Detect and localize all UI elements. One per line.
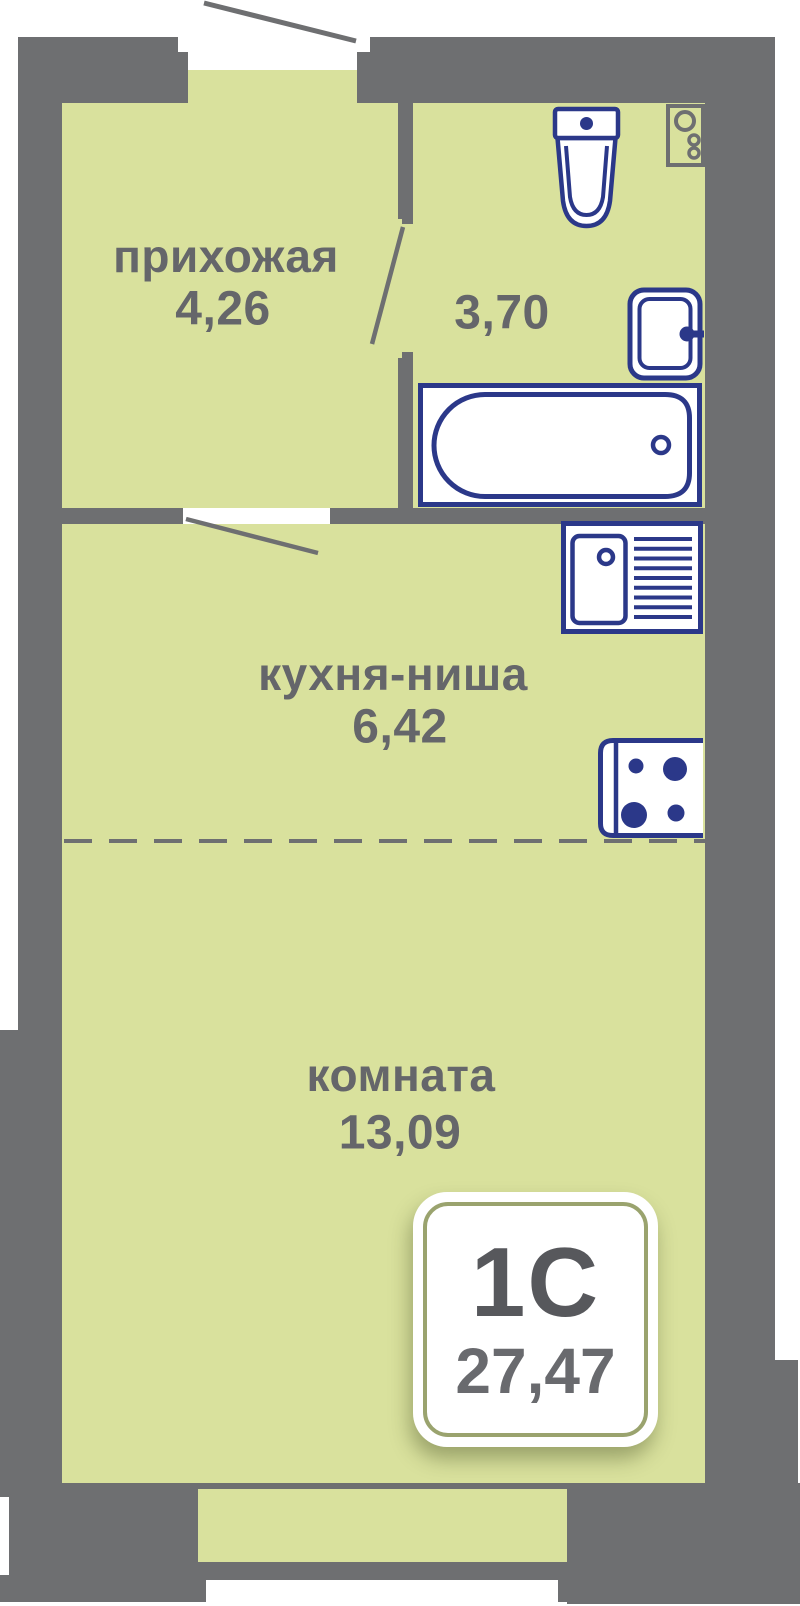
- entrance-door-swing: [204, 3, 356, 41]
- room-label: комната: [307, 1048, 496, 1102]
- apartment-type: 1С: [471, 1236, 600, 1329]
- kitchen-sink-icon: [564, 524, 701, 632]
- hallway-label: прихожая: [113, 229, 339, 283]
- apartment-badge: 1С 27,47: [413, 1192, 658, 1447]
- room-area: 13,09: [339, 1106, 462, 1161]
- bathroom-area: 3,70: [454, 286, 549, 341]
- kitchen-label: кухня-ниша: [258, 647, 528, 701]
- floor-plan: прихожая 4,26 3,70 кухня-ниша 6,42 комна…: [0, 0, 800, 1606]
- bathroom-door-swing: [372, 227, 403, 344]
- kitchen-area: 6,42: [352, 700, 447, 755]
- stove-icon: [601, 740, 704, 836]
- washbasin-icon: [630, 290, 704, 378]
- toilet-icon: [555, 109, 618, 226]
- hallway-area: 4,26: [175, 282, 270, 337]
- bathtub-icon: [421, 386, 700, 505]
- washing-machine-icon: [668, 106, 703, 165]
- kitchen-door-swing: [186, 519, 318, 553]
- apartment-total-area: 27,47: [455, 1339, 615, 1403]
